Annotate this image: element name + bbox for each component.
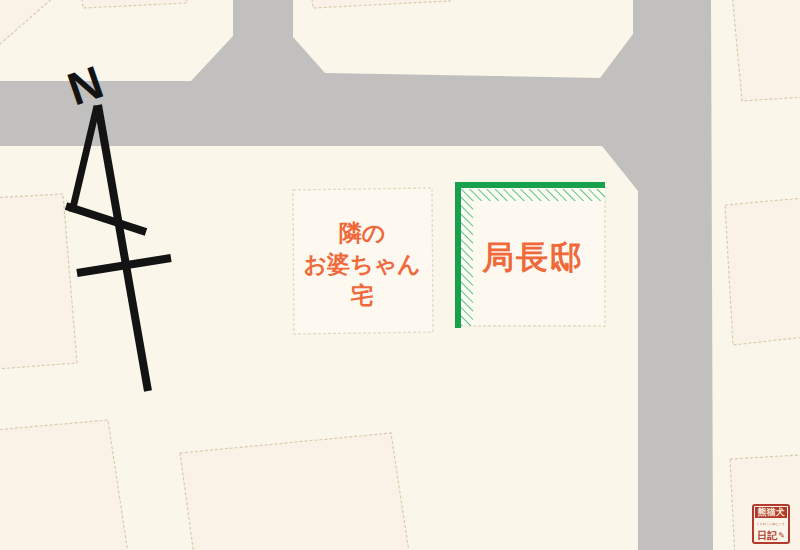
neighbor-label-line2: お婆ちゃん: [303, 251, 420, 277]
director-hatch-top: [461, 189, 605, 201]
neighbor-label-line3: 宅: [351, 282, 374, 308]
logo-title: 熊猫犬: [755, 507, 787, 518]
building-top-2: [307, 0, 450, 8]
neighbor-label-line1: 隣の: [339, 220, 386, 246]
director-highlight-border-top: [455, 182, 605, 188]
director-hatch-left: [461, 189, 473, 326]
building-left-middle: [0, 194, 77, 371]
map-canvas: N 隣の お婆ちゃん 宅 局長邸 熊猫犬 くまねこいぬにっき 日記 ✎: [0, 0, 800, 550]
building-top-1: [76, 0, 187, 8]
building-top-left-corner: [0, 0, 54, 45]
building-bottom-center: [180, 433, 411, 550]
building-right-middle: [725, 193, 800, 345]
pencil-icon: ✎: [778, 530, 785, 541]
logo-subtitle: くまねこいぬにっき: [757, 523, 786, 526]
building-bottom-left: [0, 420, 129, 550]
building-top-right: [729, 0, 800, 101]
map-drawing: N 隣の お婆ちゃん 宅 局長邸: [0, 0, 800, 550]
director-highlight-border-left: [455, 182, 461, 328]
logo-diary-row: 日記 ✎: [757, 530, 785, 541]
logo-diary-text: 日記: [757, 530, 777, 541]
director-residence-label: 局長邸: [481, 239, 584, 275]
site-logo-stamp: 熊猫犬 くまねこいぬにっき 日記 ✎: [752, 504, 790, 544]
